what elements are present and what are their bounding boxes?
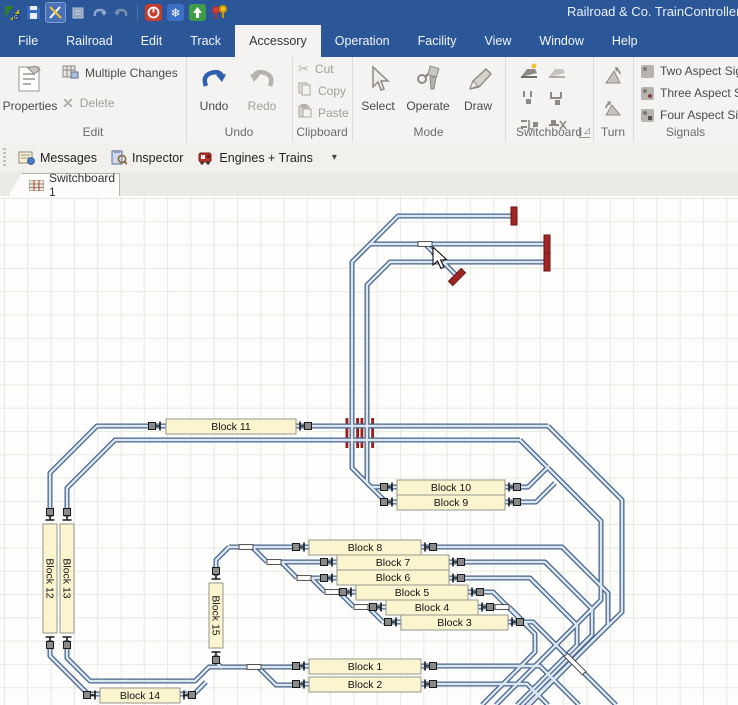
copy-label: Copy (318, 84, 346, 98)
ribbon-group-turn: Turn (593, 57, 634, 142)
inspector-icon (111, 150, 127, 165)
redo-icon (246, 62, 278, 96)
mode-group-label: Mode (352, 125, 505, 139)
document-tab-bar: Switchboard 1 (0, 172, 738, 196)
tab-label: Switchboard 1 (49, 171, 119, 199)
svg-text:❄: ❄ (170, 6, 180, 20)
buffer-stop (544, 235, 550, 253)
block-label: Block 15 (209, 595, 221, 635)
block-entry-icon (377, 603, 382, 612)
block-entry-icon (388, 498, 393, 507)
menu-view[interactable]: View (471, 25, 526, 57)
block-entry-icon (458, 559, 465, 566)
block-entry-icon (293, 544, 300, 551)
block-entry-icon (212, 652, 221, 657)
block-entry-icon (149, 423, 156, 430)
block-entry-icon (425, 662, 430, 671)
delete-label: Delete (80, 96, 115, 110)
duplicate-switchboard-icon[interactable] (547, 63, 575, 84)
block-label: Block 4 (415, 602, 450, 614)
operate-icon (414, 62, 442, 96)
app-logo-icon[interactable]: G (2, 3, 21, 22)
block-entry-icon (293, 681, 300, 688)
block-entry-icon (472, 588, 477, 597)
ribbon-group-switchboard: Switchboard ◿ (505, 57, 594, 142)
turn-left-icon[interactable] (602, 65, 624, 92)
ribbon-group-clipboard: ✂ Cut Copy Paste Clipboard (292, 57, 353, 142)
title-bar: G❄ Railroad & Co. TrainController G (0, 0, 738, 25)
block-entry-icon (370, 604, 377, 611)
track-casing (367, 262, 546, 502)
block-entry-icon (47, 509, 54, 516)
block-entry-icon (46, 516, 55, 521)
menu-help[interactable]: Help (598, 25, 652, 57)
quick-access-toolbar: G❄ (0, 3, 229, 22)
multiple-changes-icon (62, 63, 79, 84)
block-entry-icon (340, 589, 347, 596)
undo-group-label: Undo (186, 125, 292, 139)
copy-button[interactable]: Copy (298, 81, 346, 101)
four-aspect-signal-icon (641, 109, 654, 122)
undo-label: Undo (200, 99, 229, 113)
block-entry-icon (328, 558, 333, 567)
block-entry-icon (388, 483, 393, 492)
two-aspect-signal-icon (641, 65, 654, 78)
switchboard-drawing: Block 11Block 10Block 9Block 8Block 7Blo… (0, 196, 738, 705)
switchboard-tab-icon (29, 180, 44, 191)
toolbar-item-label: Messages (40, 151, 97, 165)
two-aspect-signal-button[interactable]: Two Aspect Sig (641, 61, 738, 81)
ribbon: Properties Multiple Changes ✕ Delete Edi… (0, 57, 738, 144)
properties-label: Properties (3, 99, 58, 113)
four-aspect-signal-label: Four Aspect Sig (660, 108, 738, 122)
block-label: Block 1 (348, 661, 383, 673)
draw-button[interactable]: Draw (454, 60, 502, 122)
menu-accessory[interactable]: Accessory (235, 25, 321, 57)
power-up-icon[interactable] (188, 3, 207, 22)
operate-label: Operate (406, 99, 449, 113)
quick-access-divider (137, 5, 138, 21)
block-label: Block 3 (437, 617, 472, 629)
block-label: Block 13 (60, 558, 72, 598)
crossing-marker (356, 418, 359, 448)
undo-icon (198, 62, 230, 96)
block-label: Block 2 (348, 679, 383, 691)
block-entry-icon (347, 588, 352, 597)
copy-icon (298, 82, 312, 101)
toolbar-overflow-button[interactable]: ▾ (326, 152, 343, 163)
insert-row-icon[interactable] (519, 90, 547, 111)
select-icon (365, 62, 391, 96)
three-aspect-signal-icon (641, 87, 654, 100)
menu-window[interactable]: Window (525, 25, 597, 57)
switchboard-dialog-launcher[interactable]: ◿ (579, 127, 590, 138)
cut-icon: ✂ (298, 61, 309, 77)
windows-toolbar: MessagesInspectorEngines + Trains ▾ (0, 143, 738, 173)
switchboard-canvas[interactable]: Block 11Block 10Block 9Block 8Block 7Blo… (0, 196, 738, 705)
crossing-marker (361, 418, 364, 448)
paste-button[interactable]: Paste (298, 103, 349, 123)
undo-small-icon[interactable] (90, 3, 109, 22)
delete-row-icon[interactable] (547, 90, 575, 111)
toolbar-item-messages[interactable]: Messages (11, 151, 104, 165)
block-entry-icon (509, 483, 514, 492)
block-entry-icon (425, 543, 430, 552)
turnout-switch[interactable] (247, 665, 261, 670)
redo-label: Redo (248, 99, 277, 113)
stop-icon[interactable] (144, 3, 163, 22)
edit-tools-icon[interactable] (46, 3, 65, 22)
turnout-switch[interactable] (354, 605, 368, 610)
select-label: Select (361, 99, 394, 113)
menu-railroad[interactable]: Railroad (52, 25, 127, 57)
block-entry-icon (305, 423, 312, 430)
block-entry-icon (453, 574, 458, 583)
menu-edit[interactable]: Edit (127, 25, 177, 57)
block-entry-icon (293, 663, 300, 670)
four-aspect-signal-button[interactable]: Four Aspect Sig (641, 105, 738, 125)
engines-icon (197, 151, 214, 165)
signals-group-label: Signals (633, 125, 738, 139)
turn-right-icon[interactable] (602, 97, 624, 124)
block-entry-icon (64, 642, 71, 649)
block-entry-icon (477, 589, 484, 596)
block-entry-icon (63, 637, 72, 642)
block-entry-icon (47, 642, 54, 649)
menu-track[interactable]: Track (176, 25, 235, 57)
operate-button[interactable]: Operate (404, 60, 452, 122)
paste-label: Paste (318, 106, 349, 120)
block-label: Block 14 (120, 690, 160, 702)
block-label: Block 9 (434, 497, 469, 509)
buffer-stop (511, 207, 517, 225)
block-entry-icon (84, 692, 91, 699)
block-entry-icon (213, 657, 220, 664)
delete-icon: ✕ (62, 95, 74, 112)
block-entry-icon (514, 499, 521, 506)
block-entry-icon (189, 692, 196, 699)
block-label: Block 10 (431, 482, 471, 494)
save-icon[interactable] (24, 3, 43, 22)
tab-switchboard-1[interactable]: Switchboard 1 (8, 173, 120, 196)
block-entry-icon (381, 484, 388, 491)
cut-label: Cut (315, 62, 334, 76)
block-label: Block 6 (376, 572, 411, 584)
edit-group-label: Edit (0, 125, 186, 139)
multiple-changes-label: Multiple Changes (85, 66, 178, 80)
undo-button[interactable]: Undo (190, 60, 238, 122)
ribbon-group-mode: Select Operate Draw Mode (352, 57, 506, 142)
draw-icon (464, 62, 492, 96)
crossing-marker (371, 418, 374, 448)
block-entry-icon (300, 422, 305, 431)
paste-icon (298, 104, 312, 123)
copy-doc-icon[interactable] (68, 3, 87, 22)
turnout-switch[interactable] (239, 545, 253, 550)
turnout-switch[interactable] (418, 242, 432, 247)
block-entry-icon (212, 575, 221, 580)
properties-button[interactable]: Properties (6, 60, 54, 122)
ribbon-group-signals: Two Aspect Sig Three Aspect Si Four Aspe… (633, 57, 738, 142)
toolbar-grip[interactable] (3, 148, 6, 168)
menu-operation[interactable]: Operation (321, 25, 404, 57)
block-entry-icon (321, 559, 328, 566)
messages-icon (18, 151, 35, 165)
block-entry-icon (213, 568, 220, 575)
redo-button[interactable]: Redo (238, 60, 286, 122)
menu-file[interactable]: File (4, 25, 52, 57)
properties-icon (15, 62, 45, 96)
block-label: Block 11 (211, 421, 251, 433)
block-entry-icon (430, 544, 437, 551)
block-entry-icon (458, 575, 465, 582)
block-entry-icon (385, 619, 392, 626)
ribbon-group-edit: Properties Multiple Changes ✕ Delete Edi… (0, 57, 187, 142)
turn-group-label: Turn (593, 125, 633, 139)
block-entry-icon (482, 603, 487, 612)
buffer-stop (544, 253, 550, 271)
delete-button[interactable]: ✕ Delete (62, 93, 114, 113)
track-core (367, 262, 546, 502)
block-entry-icon (63, 516, 72, 521)
turnout-switch[interactable] (495, 605, 509, 610)
turnout-switch[interactable] (267, 560, 281, 565)
block-entry-icon (156, 422, 161, 431)
cut-button[interactable]: ✂ Cut (298, 59, 334, 79)
block-entry-icon (430, 681, 437, 688)
toolbar-item-engines-trains[interactable]: Engines + Trains (190, 151, 319, 165)
three-aspect-signal-label: Three Aspect Si (660, 86, 738, 100)
select-button[interactable]: Select (354, 60, 402, 122)
multiple-changes-button[interactable]: Multiple Changes (62, 63, 178, 83)
block-entry-icon (514, 484, 521, 491)
block-label: Block 8 (348, 542, 383, 554)
block-label: Block 12 (43, 558, 55, 598)
block-entry-icon (487, 604, 494, 611)
svg-text:G: G (14, 15, 18, 21)
window-title: Railroad & Co. TrainController G (567, 4, 738, 19)
block-entry-icon (381, 499, 388, 506)
ribbon-group-undo: Undo Redo Undo (186, 57, 293, 142)
turnout-switch[interactable] (325, 590, 339, 595)
block-label: Block 5 (395, 587, 430, 599)
block-label: Block 7 (376, 557, 411, 569)
block-entry-icon (64, 509, 71, 516)
toolbar-item-inspector[interactable]: Inspector (104, 150, 190, 165)
three-aspect-signal-button[interactable]: Three Aspect Si (641, 83, 738, 103)
block-entry-icon (425, 680, 430, 689)
block-entry-icon (46, 637, 55, 642)
redo-small-icon[interactable] (112, 3, 131, 22)
turnout-switch[interactable] (297, 576, 311, 581)
create-switchboard-icon[interactable] (519, 63, 547, 84)
block-entry-icon (509, 498, 514, 507)
freeze-icon[interactable]: ❄ (166, 3, 185, 22)
menu-bar: FileRailroadEditTrackAccessoryOperationF… (0, 25, 738, 57)
block-entry-icon (300, 543, 305, 552)
block-entry-icon (392, 618, 397, 627)
accessory-pins-icon[interactable] (210, 3, 229, 22)
block-entry-icon (517, 619, 524, 626)
crossing-marker (346, 418, 349, 448)
draw-label: Draw (464, 99, 492, 113)
block-entry-icon (328, 574, 333, 583)
block-entry-icon (430, 663, 437, 670)
block-entry-icon (453, 558, 458, 567)
menu-facility[interactable]: Facility (404, 25, 471, 57)
two-aspect-signal-label: Two Aspect Sig (660, 64, 738, 78)
block-entry-icon (321, 575, 328, 582)
block-entry-icon (512, 618, 517, 627)
toolbar-item-label: Inspector (132, 151, 183, 165)
clipboard-group-label: Clipboard (292, 125, 352, 139)
toolbar-item-label: Engines + Trains (219, 151, 312, 165)
